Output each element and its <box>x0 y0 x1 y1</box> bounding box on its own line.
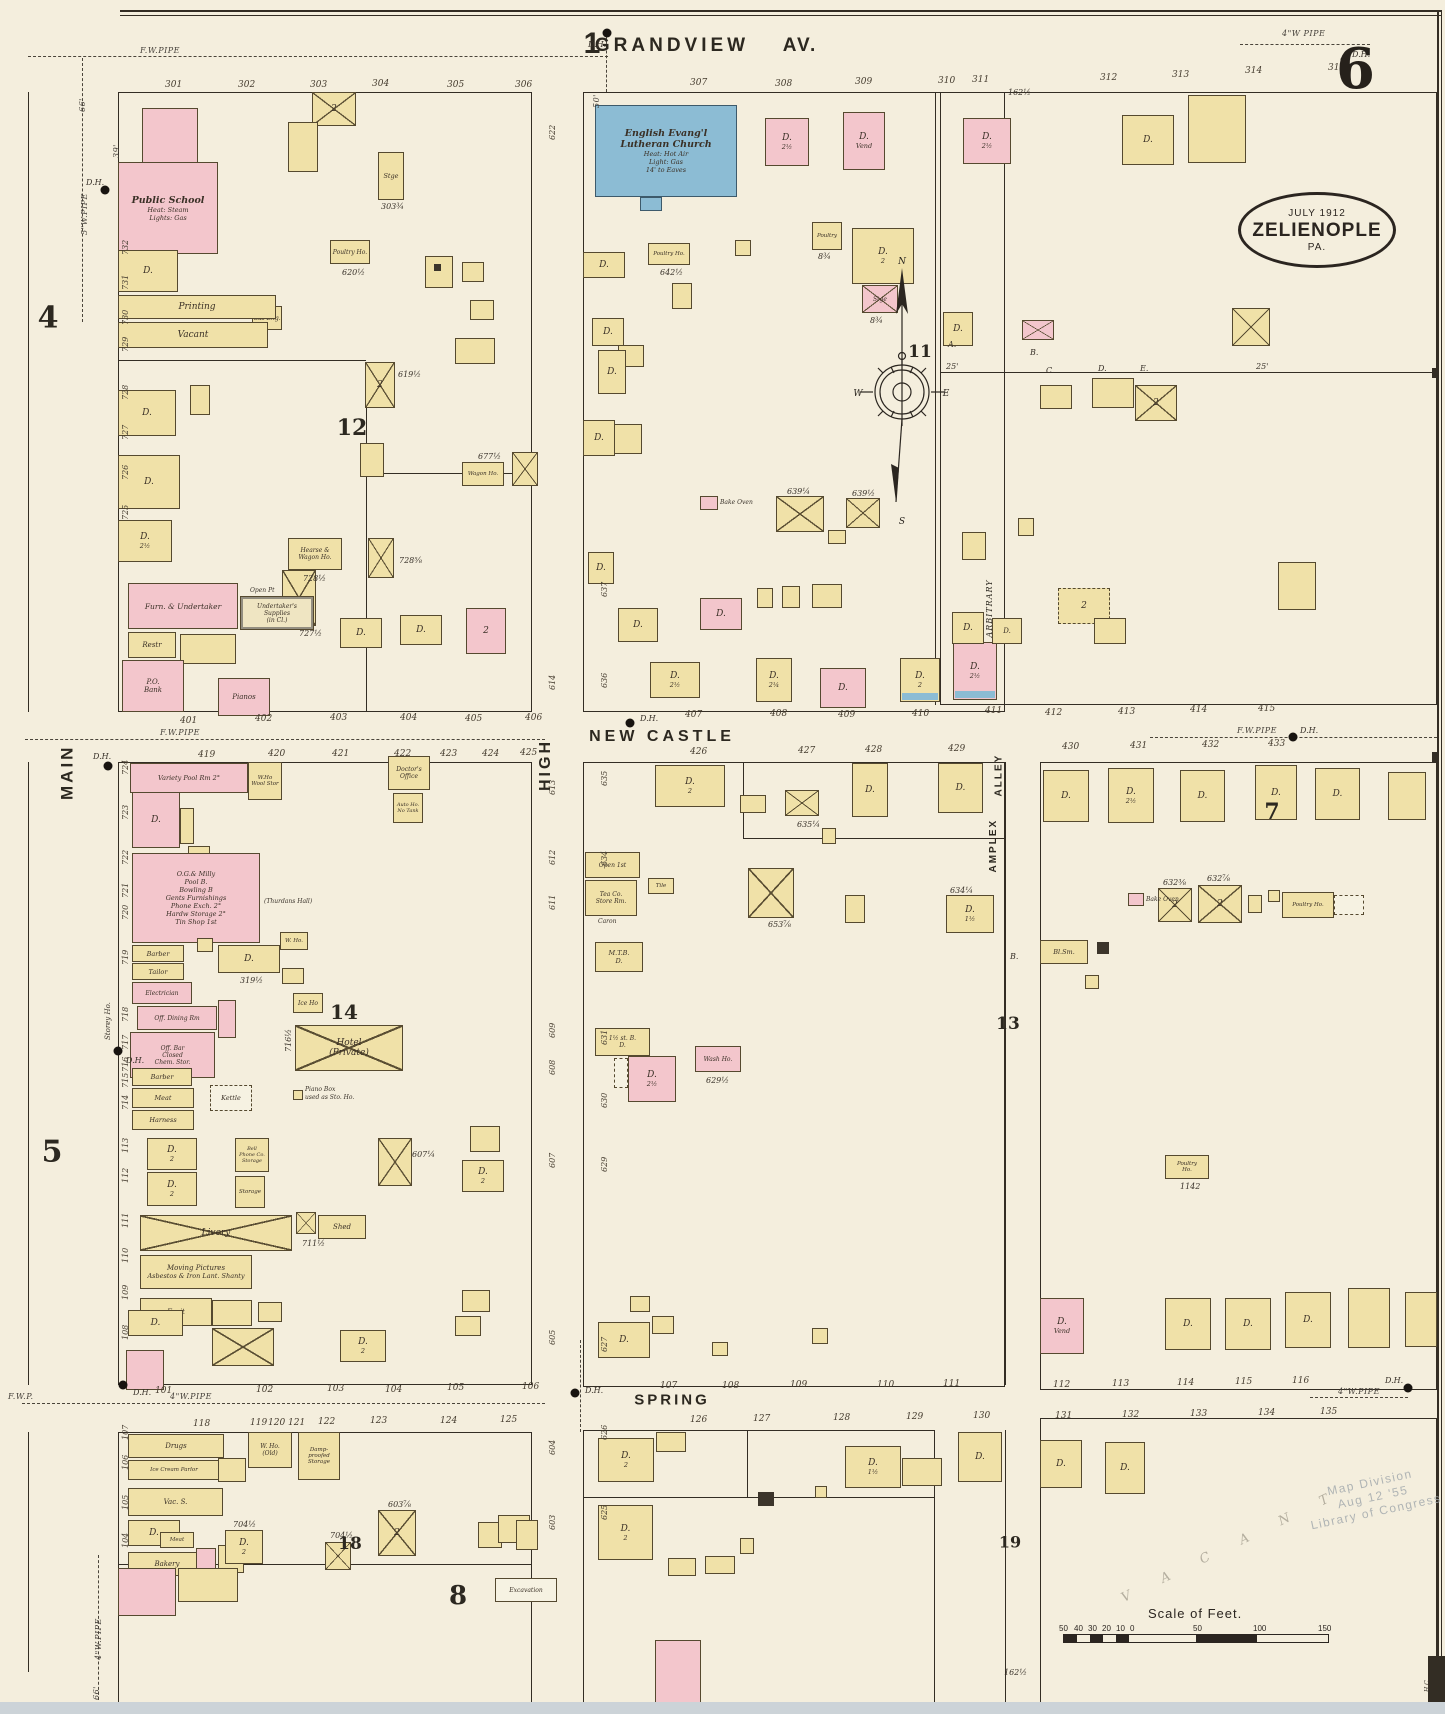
map-label: Bake Oven <box>1146 896 1179 903</box>
building-footprint: 2 <box>466 608 506 654</box>
lot-number: 432 <box>1202 740 1219 750</box>
building-label: Hotel <box>336 1038 361 1048</box>
frontage-number: 726 <box>121 465 130 480</box>
frontage-number: 629 <box>600 1157 609 1172</box>
building-label: D. <box>859 132 869 142</box>
building-label: D. <box>416 625 426 635</box>
map-line <box>28 1432 29 1672</box>
building-label: 2 <box>1153 398 1159 408</box>
building-label: Off. Bar <box>161 1045 185 1052</box>
lot-number: 106 <box>522 1382 539 1392</box>
building-footprint: D. <box>1315 768 1360 820</box>
building-footprint: D. <box>218 945 280 973</box>
building-footprint <box>434 264 441 271</box>
building-footprint <box>962 532 986 560</box>
map-label: 629½ <box>706 1076 729 1085</box>
compass-w: W <box>853 389 863 399</box>
scale-segment <box>1196 1635 1257 1642</box>
lot-number: 114 <box>1177 1378 1194 1388</box>
lot-number: 131 <box>1055 1411 1072 1421</box>
building-footprint: D. <box>938 763 983 813</box>
map-line <box>118 360 366 361</box>
frontage-number: 727 <box>121 425 130 440</box>
lot-number: 115 <box>1235 1377 1252 1387</box>
building-footprint: D.2½ <box>765 118 809 166</box>
frontage-number: 722 <box>121 850 130 865</box>
lot-number: 408 <box>770 709 787 719</box>
building-label: Heat: Steam <box>147 206 188 214</box>
map-line <box>1432 368 1438 378</box>
building-label: Livery <box>202 1228 231 1238</box>
double-hydrant-marker <box>119 1381 128 1390</box>
building-label: D. <box>239 1538 249 1548</box>
building-label: 2¼ <box>769 681 779 689</box>
building-footprint: D. <box>852 763 888 817</box>
building-label: 2 <box>1081 601 1087 611</box>
building-label: Stge <box>383 172 398 180</box>
building-footprint <box>1268 890 1280 902</box>
map-label: 634¼ <box>950 886 973 895</box>
building-footprint: Furn. & Undertaker <box>128 583 238 629</box>
building-footprint: Ice Cream Parlor <box>128 1460 220 1480</box>
map-label: 4"W.PIPE <box>170 1392 212 1401</box>
scale-tick: 20 <box>1102 1624 1111 1633</box>
map-label: 639¼ <box>787 487 810 496</box>
building-label: D. <box>670 671 680 681</box>
building-label: D. <box>151 1318 161 1328</box>
lot-number: 414 <box>1190 705 1207 715</box>
building-footprint: D.2½ <box>118 520 172 562</box>
building-label: 2½ <box>970 672 980 680</box>
frontage-number: 636 <box>600 673 609 688</box>
map-state: Pa. <box>1308 242 1326 253</box>
building-label: D. <box>982 132 992 142</box>
building-label: D. <box>1143 135 1153 145</box>
building-label: Pool B. <box>185 878 208 886</box>
building-label: D. <box>975 1452 985 1462</box>
lot-number: 427 <box>798 746 815 756</box>
building-label: Hardw Storage 2° <box>166 910 226 918</box>
map-line <box>366 473 532 474</box>
building-footprint: D.2¼ <box>756 658 792 702</box>
building-footprint: D.2 <box>340 1330 386 1362</box>
building-footprint <box>180 634 236 664</box>
building-footprint: D.2½ <box>650 662 700 698</box>
map-label: (Thurdans Hall) <box>264 898 312 905</box>
double-hydrant-marker <box>1404 1384 1413 1393</box>
frontage-number: 721 <box>121 883 130 898</box>
building-footprint <box>516 1520 538 1550</box>
building-footprint <box>218 1000 236 1038</box>
map-label: 632⅞ <box>1207 874 1230 883</box>
building-footprint: D. <box>1040 1440 1082 1488</box>
map-label: 39' <box>112 144 121 158</box>
map-line <box>28 92 29 712</box>
water-pipe-line <box>22 1403 545 1404</box>
building-label: D. <box>1003 627 1011 635</box>
building-label: D. <box>1056 1459 1066 1469</box>
building-footprint: D. <box>583 420 615 456</box>
building-label: Wagon Ho. <box>468 471 498 477</box>
building-footprint <box>378 1138 412 1186</box>
building-label: 2 <box>170 1155 174 1163</box>
building-footprint <box>812 584 842 608</box>
lot-number: 128 <box>833 1413 850 1423</box>
building-label: Supplies <box>264 610 290 617</box>
frontage-number: 637 <box>600 582 609 597</box>
frontage-number: 724 <box>121 760 130 775</box>
lot-number: 410 <box>912 709 929 719</box>
street-label: GRANDVIEW <box>595 35 749 57</box>
lot-number: 305 <box>447 80 464 90</box>
lot-number: 125 <box>500 1415 517 1425</box>
building-label: D. <box>594 433 604 443</box>
building-label: D. <box>1061 791 1071 801</box>
building-label: Vend <box>856 142 872 150</box>
building-label: English Evang'l <box>625 128 708 139</box>
building-label: Storage <box>242 1158 262 1164</box>
building-label: D. <box>1126 787 1136 797</box>
lot-number: 405 <box>465 714 482 724</box>
building-footprint: D.2 <box>225 1530 263 1564</box>
building-footprint: Storage <box>235 1176 265 1208</box>
building-label: Tailor <box>149 968 168 976</box>
building-label: D. <box>915 671 925 681</box>
double-hydrant-label: D.H. <box>1385 1376 1403 1385</box>
building-footprint <box>196 1548 216 1570</box>
lot-number: 107 <box>660 1381 677 1391</box>
lot-number: 406 <box>525 713 542 723</box>
double-hydrant-label: D.H. <box>126 1056 144 1065</box>
building-label: Ice Cream Parlor <box>150 1467 198 1473</box>
map-label: B. <box>1030 348 1038 357</box>
building-footprint: Kettle <box>210 1085 252 1111</box>
building-footprint: Ice Ho <box>293 993 323 1013</box>
building-footprint: Meat <box>132 1088 194 1108</box>
building-footprint <box>1188 95 1246 163</box>
building-footprint <box>1094 618 1126 644</box>
building-footprint: 2 <box>1198 885 1242 923</box>
map-label: 25' <box>1256 362 1268 371</box>
lot-number: 403 <box>330 713 347 723</box>
building-label: Drugs <box>165 1442 187 1450</box>
building-footprint: D. <box>1225 1298 1271 1350</box>
map-label: E. <box>1140 364 1148 373</box>
building-footprint <box>118 1568 176 1616</box>
lot-number: 111 <box>943 1379 960 1389</box>
building-label: Meat <box>170 1537 184 1543</box>
building-footprint: Off. Dining Rm <box>137 1006 217 1030</box>
scale-tick: 50 <box>1059 1624 1068 1633</box>
building-label: No Tank <box>397 808 418 814</box>
building-footprint: Open 1st <box>585 852 640 878</box>
building-label: Wash Ho. <box>704 1056 733 1063</box>
building-label: Bakery <box>154 1560 179 1568</box>
water-pipe-line <box>28 56 608 57</box>
frontage-number: 611 <box>548 895 557 910</box>
map-label: 8¾ <box>818 252 831 261</box>
building-label: Ho. <box>1182 1167 1192 1173</box>
building-footprint: D. <box>1165 1298 1211 1350</box>
map-line <box>28 762 29 1385</box>
building-footprint: 2 <box>312 92 356 126</box>
scale-segment <box>1090 1635 1103 1642</box>
building-footprint <box>1388 772 1426 820</box>
building-label: 2½ <box>647 1080 657 1088</box>
building-footprint: W.HoWool Stor <box>248 762 282 800</box>
lot-number: 306 <box>515 80 532 90</box>
building-label: Printing <box>178 302 215 312</box>
building-footprint: D. <box>1043 770 1089 822</box>
compass-n: N <box>897 257 907 267</box>
building-label: Lutheran Church <box>620 139 711 150</box>
building-label: 2 <box>242 1548 246 1556</box>
building-footprint <box>1085 975 1099 989</box>
building-label: Bank <box>144 686 162 694</box>
building-label: 14' to Eaves <box>646 166 686 174</box>
building-label: D. <box>647 1070 657 1080</box>
map-label: 711½ <box>302 1239 325 1248</box>
frontage-number: 715 <box>121 1073 130 1088</box>
frontage-number: 634 <box>600 851 609 866</box>
building-label: D. <box>615 957 622 965</box>
building-footprint <box>748 868 794 918</box>
map-label: 303¾ <box>381 202 404 211</box>
building-label: 2½ <box>1126 797 1136 805</box>
map-label: 5"W.PIPE <box>80 193 89 235</box>
building-label: Kettle <box>221 1094 241 1102</box>
building-footprint <box>197 938 213 952</box>
building-footprint: P.O.Bank <box>122 660 184 712</box>
lot-number: 302 <box>238 80 255 90</box>
building-footprint: Public SchoolHeat: SteamLights: Gas <box>118 162 218 254</box>
building-label: D. <box>685 777 695 787</box>
double-hydrant-marker <box>626 719 635 728</box>
building-footprint <box>630 1296 650 1312</box>
building-label: Barber <box>151 1073 174 1081</box>
building-footprint <box>288 122 318 172</box>
building-label: Store Rm. <box>596 898 627 905</box>
building-footprint: Poultry <box>812 222 842 250</box>
building-footprint: Poultry Ho. <box>648 243 690 265</box>
building-footprint: D. <box>1122 115 1174 165</box>
lot-number: 429 <box>948 744 965 754</box>
building-label: Poultry Ho. <box>333 249 367 256</box>
building-footprint <box>614 424 642 454</box>
map-label: Caron <box>598 918 617 925</box>
building-label: 2 <box>918 681 922 689</box>
building-label: Tin Shop 1st <box>175 918 217 926</box>
double-hydrant-marker <box>104 762 113 771</box>
frontage-number: 112 <box>121 1168 130 1183</box>
lot-number: 424 <box>482 749 499 759</box>
map-label: Bake Oven <box>720 499 753 506</box>
building-label: 2 <box>624 1461 628 1469</box>
building-footprint <box>1040 385 1072 409</box>
building-footprint <box>656 1432 686 1452</box>
map-line <box>940 372 1437 373</box>
building-label: D. <box>142 408 152 418</box>
building-footprint: D. <box>592 318 624 346</box>
lot-number: 126 <box>690 1415 707 1425</box>
building-footprint <box>668 1558 696 1576</box>
building-footprint: D.2 <box>147 1138 197 1170</box>
lot-number: 401 <box>180 716 197 726</box>
lot-number: 420 <box>268 749 285 759</box>
building-footprint: Shed <box>318 1215 366 1239</box>
double-hydrant-marker <box>571 1389 580 1398</box>
building-footprint: Undertaker'sSupplies(in Cl.) <box>240 596 314 630</box>
building-footprint: D.Vend <box>843 112 885 170</box>
building-footprint <box>845 895 865 923</box>
double-hydrant-label: D.H. <box>640 714 658 723</box>
street-label: ALLEY <box>994 754 1005 797</box>
frontage-number: 729 <box>121 337 130 352</box>
map-label: B. <box>1010 952 1018 961</box>
map-label: 50' <box>592 94 601 108</box>
building-footprint <box>455 338 495 364</box>
building-footprint: M.T.B.D. <box>595 942 643 972</box>
double-hydrant-label: D.H. <box>1300 726 1318 735</box>
building-label: D. <box>769 671 779 681</box>
water-pipe-line <box>580 1340 581 1432</box>
lot-number: 134 <box>1258 1408 1275 1418</box>
map-city: Zelienople <box>1252 220 1381 242</box>
building-label: D. <box>244 954 254 964</box>
map-label: 4"W.PIPE <box>94 1618 103 1660</box>
building-footprint: Livery <box>140 1215 292 1251</box>
lot-number: 415 <box>1258 704 1275 714</box>
frontage-number: 720 <box>121 905 130 920</box>
building-label: 2½ <box>982 142 992 150</box>
lot-number: 309 <box>855 77 872 87</box>
building-footprint <box>368 538 394 578</box>
building-label: 1½ st. B. <box>609 1035 636 1042</box>
building-footprint <box>1232 308 1270 346</box>
building-label: 2 <box>394 1528 400 1538</box>
building-footprint: Barber <box>132 945 184 962</box>
frontage-number: 604 <box>548 1440 557 1455</box>
map-line <box>1432 752 1438 762</box>
building-label: Gents Furnishings <box>166 894 227 902</box>
lot-number: 426 <box>690 747 707 757</box>
building-footprint: Hearse &Wagon Ho. <box>288 538 342 570</box>
building-footprint: D.1½ <box>845 1446 901 1488</box>
scale-tick: 150 <box>1318 1624 1331 1633</box>
frontage-number: 625 <box>600 1505 609 1520</box>
map-label: D. <box>1098 364 1107 373</box>
map-label: 66' <box>92 1686 101 1700</box>
compass-s: S <box>899 517 905 527</box>
map-label: F.W.PIPE <box>140 46 180 55</box>
lot-number: 304 <box>372 79 389 89</box>
building-footprint: Wash Ho. <box>695 1046 741 1072</box>
building-footprint <box>822 828 836 844</box>
building-footprint: Pianos <box>218 678 270 716</box>
scale-tick: 100 <box>1253 1624 1266 1633</box>
building-footprint: W. Ho.(Old) <box>248 1432 292 1468</box>
scale-segment <box>1116 1635 1129 1642</box>
building-footprint: D.Vend <box>1040 1298 1084 1354</box>
block-number: 12 <box>337 415 368 441</box>
building-label: Pianos <box>232 693 255 701</box>
lot-number: 313 <box>1172 70 1189 80</box>
frontage-number: 605 <box>548 1330 557 1345</box>
building-footprint <box>282 968 304 984</box>
lot-number: 123 <box>370 1416 387 1426</box>
map-line <box>120 15 1441 16</box>
building-footprint <box>212 1328 274 1366</box>
building-label: Lights: Gas <box>149 214 186 222</box>
block-number: 14 <box>330 1000 358 1024</box>
building-label: Tea Co. <box>600 891 623 898</box>
building-label: 2 <box>483 626 489 636</box>
building-footprint: Electrician <box>132 982 192 1004</box>
building-footprint: Printing <box>118 295 276 319</box>
building-footprint <box>512 452 538 486</box>
building-footprint: Auto Ho.No Tank <box>393 793 423 823</box>
building-footprint: Harness <box>132 1110 194 1130</box>
lot-number: 433 <box>1268 739 1285 749</box>
building-footprint <box>178 1568 238 1602</box>
lot-number: 102 <box>256 1385 273 1395</box>
building-footprint: O.G.& MillyPool B.Bowling BGents Furnish… <box>132 853 260 943</box>
lot-number: 307 <box>690 78 707 88</box>
building-footprint: D.1½ <box>946 895 994 933</box>
building-footprint <box>700 496 718 510</box>
building-label: Bowling B <box>179 886 213 894</box>
building-footprint: D. <box>598 350 626 394</box>
street-label: NEW CASTLE <box>589 728 735 746</box>
lot-number: 409 <box>838 710 855 720</box>
building-label: Chem. Stor. <box>155 1059 191 1066</box>
block-number: 7 <box>1264 799 1279 825</box>
building-label: D. <box>596 563 606 573</box>
building-footprint: Doctor'sOffice <box>388 756 430 790</box>
building-label: Electrician <box>145 990 178 997</box>
building-label: Bl.Sm. <box>1053 948 1075 956</box>
building-footprint <box>740 795 766 813</box>
lot-number: 301 <box>165 80 182 90</box>
building-label: D. <box>151 815 161 825</box>
building-footprint <box>462 1290 490 1312</box>
building-footprint: D. <box>128 1310 183 1336</box>
frontage-number: 108 <box>121 1325 130 1340</box>
double-hydrant-label: D.H. <box>86 178 104 187</box>
map-label: H.C. <box>1424 1679 1431 1692</box>
double-hydrant-label: D.H. <box>585 1386 603 1395</box>
lot-number: 109 <box>790 1380 807 1390</box>
building-footprint <box>470 300 494 320</box>
building-label: D. <box>478 1167 488 1177</box>
building-footprint <box>258 1302 282 1322</box>
building-footprint <box>614 1058 628 1088</box>
frontage-number: 717 <box>121 1035 130 1050</box>
street-label: HIGH <box>537 739 555 791</box>
building-footprint <box>190 385 210 415</box>
frontage-number: 113 <box>121 1138 130 1153</box>
building-label: Wool Stor <box>251 781 278 787</box>
building-footprint: D. <box>1105 1442 1145 1494</box>
block-number: 13 <box>996 1014 1020 1034</box>
building-footprint: W. Ho. <box>280 932 308 950</box>
block-number: 8 <box>449 1581 467 1611</box>
building-label: 2 <box>377 380 383 390</box>
building-footprint: D. <box>992 618 1022 644</box>
building-footprint <box>296 1212 316 1234</box>
building-label: D. <box>970 662 980 672</box>
building-label: D. <box>143 266 153 276</box>
